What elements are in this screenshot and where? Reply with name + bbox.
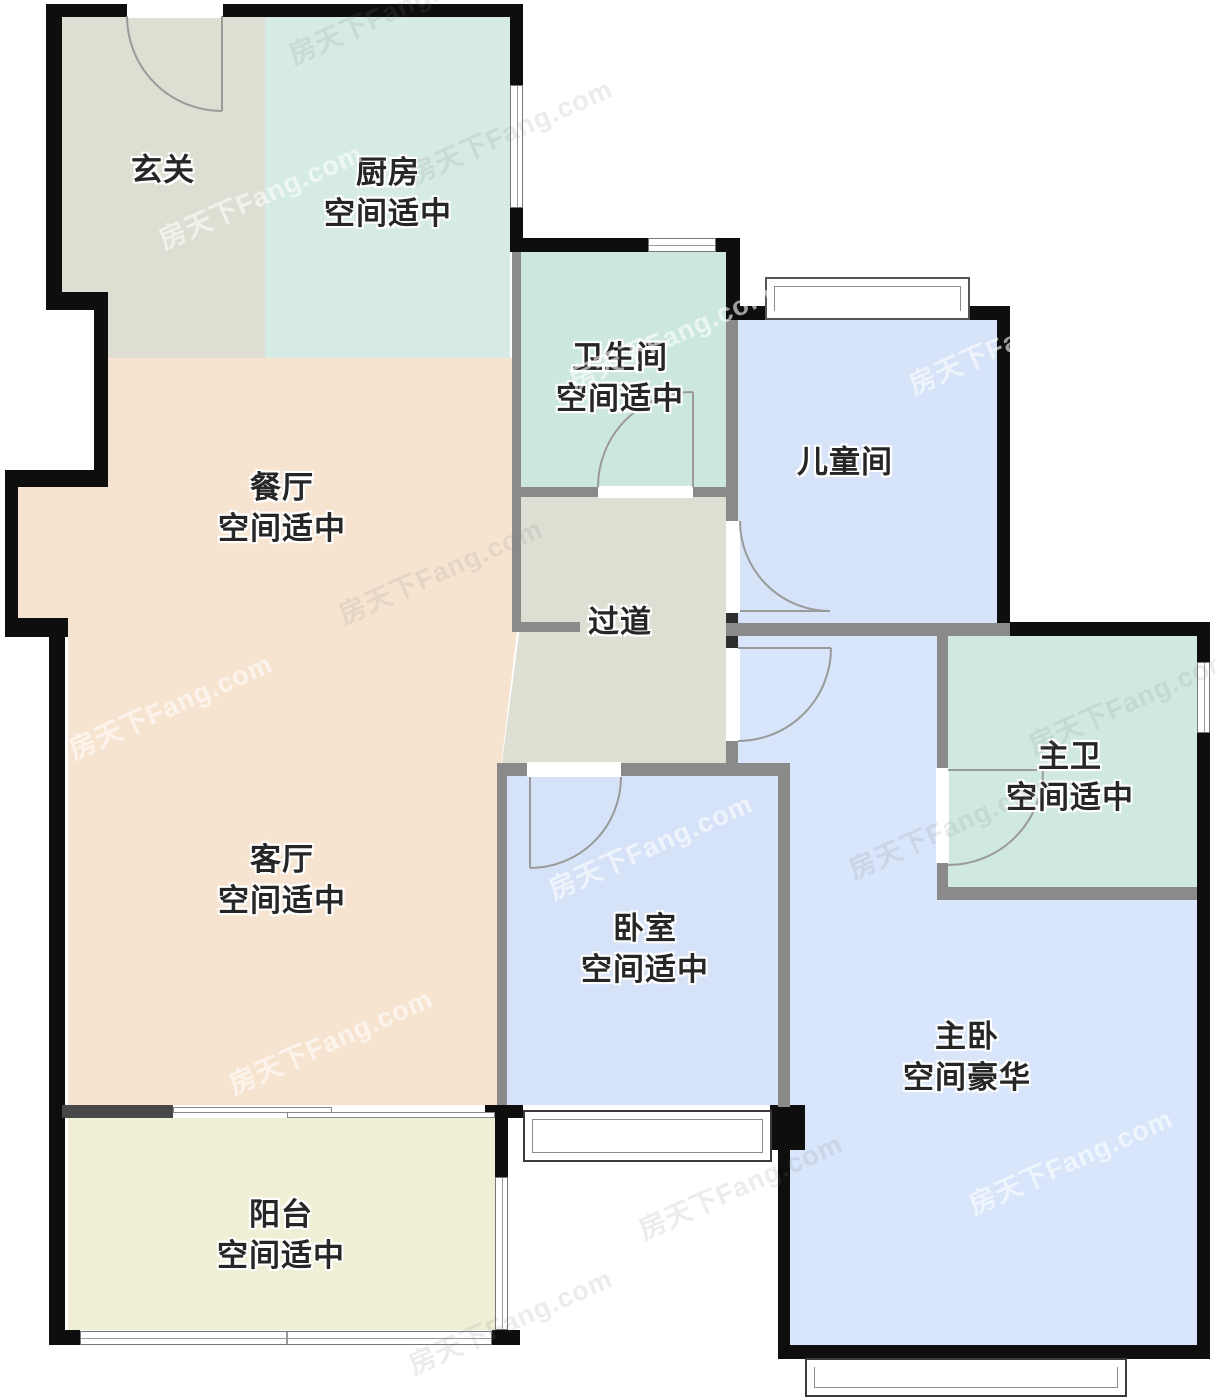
wall-segment <box>770 1105 805 1150</box>
wall-segment <box>512 622 580 632</box>
wall-segment <box>778 1150 790 1345</box>
wall-segment <box>1197 733 1210 1358</box>
wall-segment <box>512 252 521 497</box>
floor-plan: 玄关 厨房 空间适中 卫生间 空间适中 儿童间 餐厅 空间适中 过道 主卫 空间… <box>0 0 1215 1400</box>
door-opening-bathroom <box>598 486 693 498</box>
door-opening-master-bedroom <box>726 648 740 741</box>
wall-segment <box>223 4 523 17</box>
wall-segment <box>497 776 507 1105</box>
room-quality: 空间适中 <box>217 1235 345 1276</box>
room-name: 儿童间 <box>797 442 893 483</box>
room-name: 玄关 <box>131 150 195 191</box>
wall-segment <box>5 618 68 637</box>
window-kitchen-bottom <box>648 238 716 252</box>
wall-segment <box>778 1345 1210 1359</box>
label-kitchen: 厨房 空间适中 <box>324 152 452 234</box>
wall-segment <box>726 320 738 521</box>
window-balcony-bottom <box>80 1331 492 1345</box>
wall-segment <box>937 887 1197 900</box>
sliding-door-balcony-right-panel <box>287 1112 495 1118</box>
wall-segment <box>621 763 790 776</box>
room-name: 主卫 <box>1006 736 1134 777</box>
wall-segment <box>1197 622 1210 662</box>
wall-segment <box>510 238 648 252</box>
window-master-bathroom <box>1197 662 1210 733</box>
room-name: 阳台 <box>217 1194 345 1235</box>
label-bedroom: 卧室 空间适中 <box>581 908 709 990</box>
bay-window-bedroom <box>523 1110 772 1162</box>
label-balcony: 阳台 空间适中 <box>217 1194 345 1276</box>
room-name: 卧室 <box>581 908 709 949</box>
room-name: 厨房 <box>324 152 452 193</box>
wall-segment <box>497 763 527 776</box>
wall-segment <box>46 4 62 310</box>
room-quality: 空间适中 <box>218 880 346 921</box>
label-master-bathroom: 主卫 空间适中 <box>1006 736 1134 818</box>
room-name: 客厅 <box>218 839 346 880</box>
door-opening-kids-room <box>726 521 740 613</box>
label-dining-room: 餐厅 空间适中 <box>218 467 346 549</box>
wall-segment <box>937 636 948 768</box>
wall-segment <box>5 470 18 637</box>
room-quality: 空间适中 <box>556 378 684 419</box>
wall-segment <box>997 306 1010 636</box>
wall-segment <box>512 487 598 497</box>
room-quality: 空间适中 <box>218 508 346 549</box>
wall-segment <box>62 1105 173 1118</box>
label-hallway: 过道 <box>588 602 652 643</box>
label-bathroom: 卫生间 空间适中 <box>556 337 684 419</box>
wall-segment <box>46 292 108 310</box>
wall-segment <box>510 4 523 85</box>
wall-segment <box>492 1330 520 1345</box>
label-living-room: 客厅 空间适中 <box>218 839 346 921</box>
door-opening-master-bathroom <box>936 768 949 863</box>
wall-segment <box>49 637 65 1345</box>
wall-segment <box>726 623 1010 636</box>
room-name: 卫生间 <box>556 337 684 378</box>
bay-window-kids-room <box>765 277 970 320</box>
wall-segment <box>693 487 726 497</box>
window-balcony-right <box>495 1177 508 1330</box>
room-quality: 空间适中 <box>324 193 452 234</box>
door-opening-bedroom <box>527 762 621 777</box>
label-entry: 玄关 <box>131 150 195 191</box>
room-name: 餐厅 <box>218 467 346 508</box>
room-quality: 空间适中 <box>581 949 709 990</box>
room-name: 过道 <box>588 602 652 643</box>
bay-window-master-bedroom <box>805 1358 1127 1397</box>
wall-segment <box>94 310 108 470</box>
wall-segment <box>49 1330 80 1345</box>
wall-segment <box>778 776 790 1107</box>
wall-segment <box>5 470 108 487</box>
wall-segment <box>997 622 1210 636</box>
door-opening-entrance <box>127 2 223 18</box>
window-kitchen-right <box>510 85 523 208</box>
room-name: 主卧 <box>903 1016 1031 1057</box>
label-master-bedroom: 主卧 空间豪华 <box>903 1016 1031 1098</box>
wall-segment <box>726 306 770 320</box>
wall-segment <box>512 497 521 632</box>
label-kids-room: 儿童间 <box>797 442 893 483</box>
room-quality: 空间适中 <box>1006 777 1134 818</box>
room-quality: 空间豪华 <box>903 1057 1031 1098</box>
